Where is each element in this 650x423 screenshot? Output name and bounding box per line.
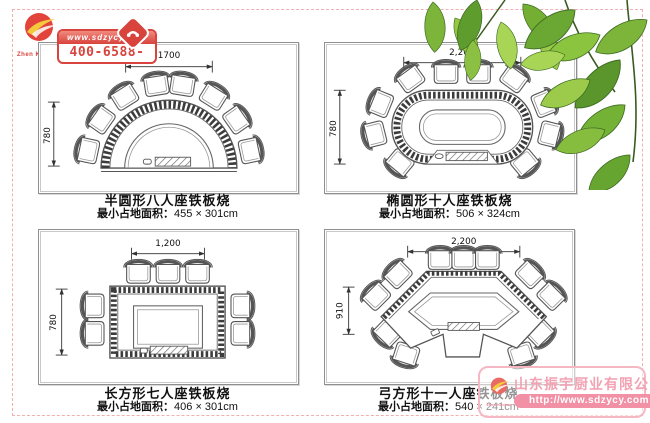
svg-text:780: 780 — [49, 314, 59, 331]
diagram-footprint: 最小占地面积：506 × 324cm — [324, 208, 575, 221]
semi-circle-table-drawing: 1700 780 — [41, 45, 296, 193]
diagram-panel-oval: 2,200 780 — [324, 42, 577, 194]
oval-table-drawing: 2,200 780 — [327, 45, 574, 193]
watermark-logo-icon — [487, 377, 511, 397]
watermark-logo: Zhen Kitchen — [484, 377, 514, 407]
caption-oval: 椭圆形十人座铁板烧 最小占地面积：506 × 324cm — [324, 193, 575, 221]
cooking-plate — [134, 306, 203, 348]
company-name: 山东振宇厨业有限公司 — [514, 376, 650, 392]
svg-text:2,200: 2,200 — [449, 48, 475, 58]
svg-text:780: 780 — [329, 120, 339, 137]
rectangular-table-drawing: 1,200 780 — [41, 232, 296, 384]
control-box — [435, 154, 443, 159]
diagram-panel-bow: 2,200 910 — [324, 229, 575, 385]
dimension-width: 2,200 — [404, 48, 521, 69]
diagram-footprint: 最小占地面积：406 × 301cm — [38, 401, 297, 414]
dimension-depth: 780 — [43, 102, 60, 166]
caption-rectangle: 长方形七人座铁板烧 最小占地面积：406 × 301cm — [38, 386, 297, 414]
diagram-footprint: 最小占地面积：455 × 301cm — [38, 208, 297, 221]
watermark-brand-name: Zhen Kitchen — [484, 402, 514, 407]
svg-text:910: 910 — [336, 302, 346, 319]
control-box — [143, 159, 151, 164]
svg-text:1700: 1700 — [158, 51, 181, 61]
svg-text:780: 780 — [43, 127, 53, 144]
diagram-title: 长方形七人座铁板烧 — [38, 386, 297, 401]
company-watermark: Zhen Kitchen 山东振宇厨业有限公司 http://www.sdzyc… — [478, 366, 646, 418]
diagram-panel-rectangle: 1,200 780 — [38, 229, 299, 385]
bow-table-drawing: 2,200 910 — [327, 232, 572, 384]
diagram-title: 半圆形八人座铁板烧 — [38, 193, 297, 208]
dimension-depth: 780 — [329, 90, 346, 164]
diagram-title: 椭圆形十人座铁板烧 — [324, 193, 575, 208]
griddle — [448, 323, 479, 331]
dimension-depth: 910 — [336, 287, 355, 334]
cooking-plate — [419, 110, 505, 144]
caption-semi-circle: 半圆形八人座铁板烧 最小占地面积：455 × 301cm — [38, 193, 297, 221]
griddle — [155, 157, 190, 166]
control-box — [140, 348, 147, 353]
company-url: http://www.sdzycy.com — [514, 394, 650, 408]
griddle — [446, 152, 487, 160]
griddle — [150, 346, 187, 354]
catalog-page: Zhen Kitchen www.sdzycy.com 400-6588-767 — [0, 0, 650, 423]
diagram-panel-semi-circle: 1700 780 — [38, 42, 299, 194]
svg-text:1,200: 1,200 — [155, 239, 181, 249]
dimension-depth: 780 — [49, 289, 68, 355]
phone-number: 400-6588-767 — [59, 44, 155, 64]
dimension-width: 1,200 — [132, 239, 205, 260]
brand-logo-icon — [19, 12, 59, 46]
